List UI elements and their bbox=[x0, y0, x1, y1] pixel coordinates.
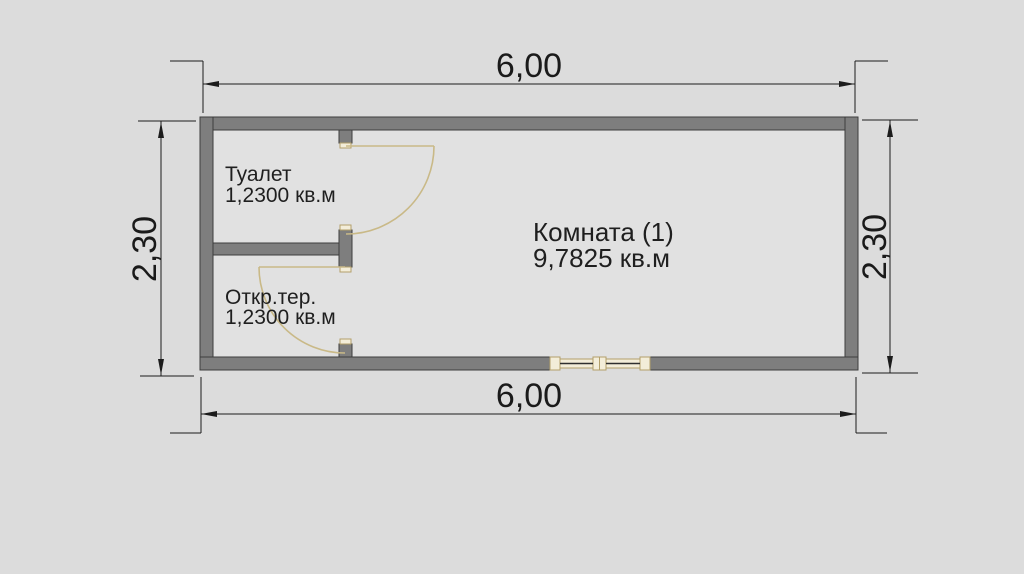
dimension-left-value: 2,30 bbox=[126, 216, 164, 282]
arrowhead-icon bbox=[887, 356, 893, 372]
window-icon bbox=[550, 357, 650, 370]
floor-plan-canvas: 6,00 6,00 2,30 2,30 Туалет 1,2300 кв.м О… bbox=[0, 0, 1024, 574]
toilet-room-area: 1,2300 кв.м bbox=[225, 184, 336, 207]
main-room-area: 9,7825 кв.м bbox=[533, 243, 670, 273]
floor-plan-drawing: 6,00 6,00 2,30 2,30 Туалет 1,2300 кв.м О… bbox=[0, 0, 1024, 574]
dimension-right: 2,30 bbox=[856, 120, 918, 373]
dimension-top: 6,00 bbox=[170, 47, 888, 113]
wall-top bbox=[200, 117, 858, 130]
wall-bottom-left bbox=[200, 357, 550, 370]
terrace-room-area: 1,2300 кв.м bbox=[225, 306, 336, 329]
wall-partition bbox=[213, 243, 339, 255]
arrowhead-icon bbox=[201, 411, 217, 417]
threshold-icon bbox=[340, 339, 351, 344]
arrowhead-icon bbox=[839, 81, 855, 87]
wall-partition-end-cap bbox=[339, 230, 352, 267]
arrowhead-icon bbox=[840, 411, 856, 417]
window-mullion-right bbox=[640, 357, 650, 370]
dimension-bottom-value: 6,00 bbox=[496, 377, 562, 415]
window-mullion-left bbox=[550, 357, 560, 370]
threshold-icon bbox=[340, 225, 351, 230]
dimension-right-value: 2,30 bbox=[856, 214, 894, 280]
arrowhead-icon bbox=[887, 121, 893, 137]
toilet-room-name: Туалет bbox=[225, 163, 292, 186]
wall-left bbox=[200, 117, 213, 370]
door-jamb-bottom bbox=[339, 344, 352, 357]
arrowhead-icon bbox=[203, 81, 219, 87]
dimension-left: 2,30 bbox=[126, 121, 196, 376]
door-jamb-top bbox=[339, 130, 352, 143]
dimension-bottom: 6,00 bbox=[170, 377, 887, 433]
arrowhead-icon bbox=[158, 122, 164, 138]
arrowhead-icon bbox=[158, 359, 164, 375]
wall-bottom-right bbox=[650, 357, 858, 370]
dimension-top-value: 6,00 bbox=[496, 47, 562, 85]
